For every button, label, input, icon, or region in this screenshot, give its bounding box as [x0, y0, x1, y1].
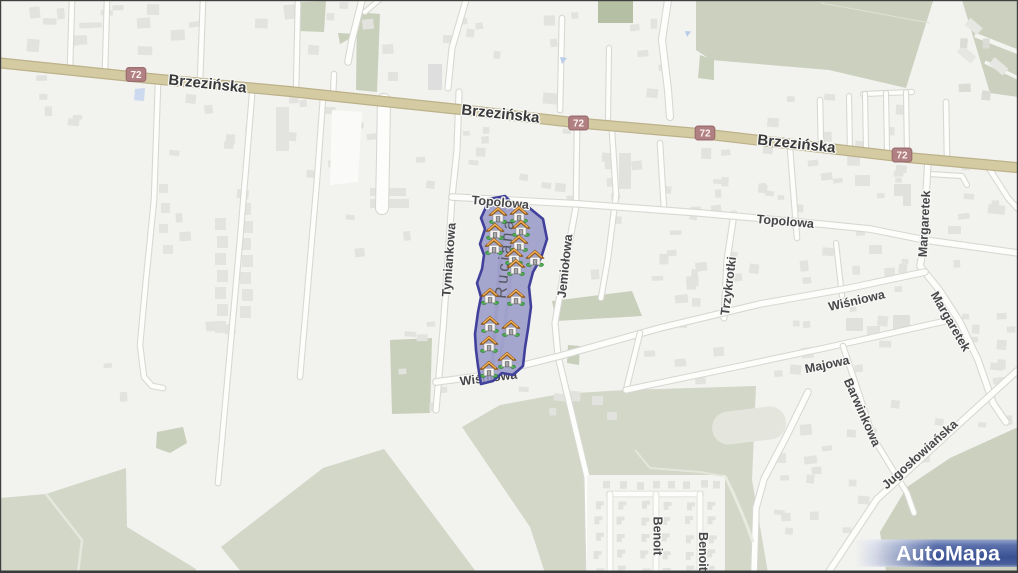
svg-text:72: 72 — [699, 129, 711, 140]
svg-text:Benoit: Benoit — [696, 532, 710, 572]
svg-text:Benoit: Benoit — [651, 517, 665, 557]
svg-text:72: 72 — [130, 70, 142, 81]
svg-text:72: 72 — [573, 119, 585, 130]
svg-text:AutoMapa: AutoMapa — [896, 542, 1001, 566]
svg-text:72: 72 — [896, 151, 908, 162]
